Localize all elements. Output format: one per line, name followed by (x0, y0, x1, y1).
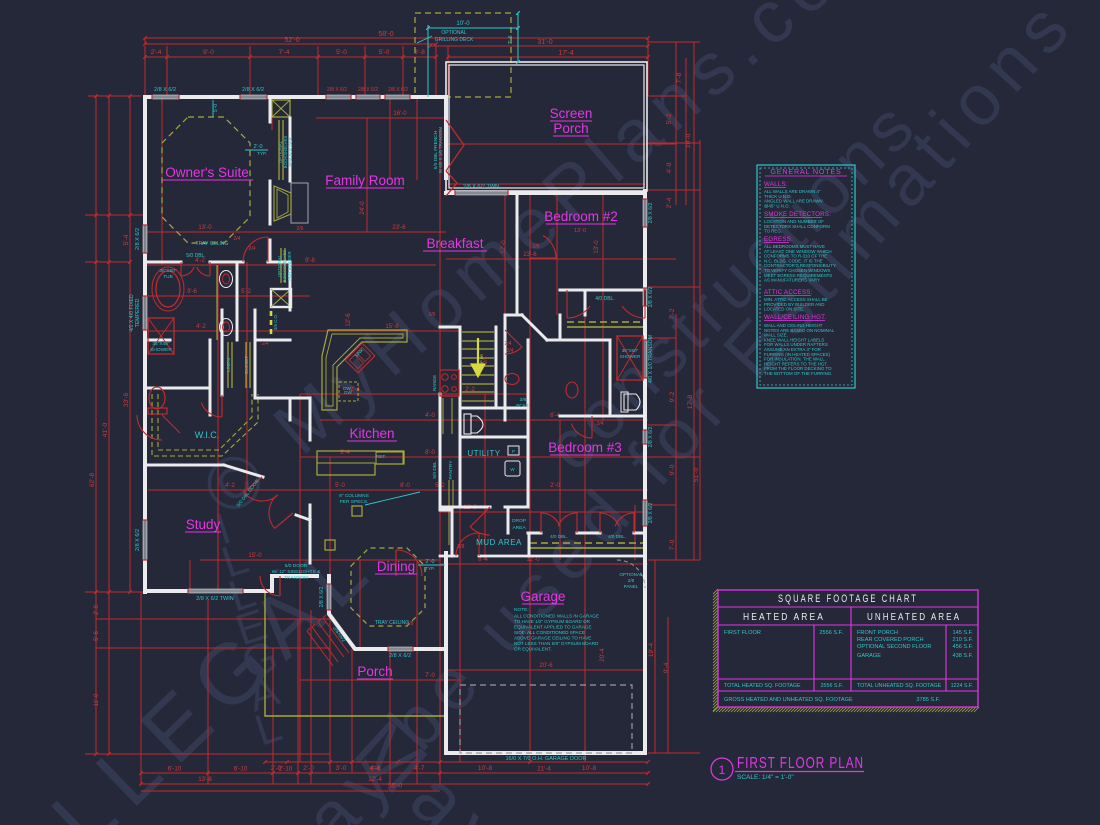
svg-text:REAR COVERED PORCH: REAR COVERED PORCH (857, 637, 924, 643)
svg-text:3/6 C.O.: 3/6 C.O. (273, 314, 278, 330)
svg-text:7'-4: 7'-4 (279, 49, 290, 56)
svg-text:FIRST FLOOR: FIRST FLOOR (724, 630, 761, 636)
svg-text:36"X48": 36"X48" (152, 341, 170, 347)
svg-text:438 S.F.: 438 S.F. (952, 653, 973, 659)
svg-text:SHOWER: SHOWER (150, 347, 172, 353)
svg-text:W.I.C.: W.I.C. (195, 430, 220, 440)
svg-text:2/8 X 6/2: 2/8 X 6/2 (648, 503, 654, 524)
svg-text:@45° U.N.O.: @45° U.N.O. (764, 203, 790, 208)
svg-text:7'-8: 7'-8 (676, 72, 683, 83)
svg-text:20'-4: 20'-4 (600, 648, 606, 662)
svg-text:2/6: 2/6 (429, 312, 436, 318)
svg-text:7'-0: 7'-0 (669, 539, 676, 550)
svg-text:WALLS:: WALLS: (764, 181, 788, 188)
svg-text:4'-2: 4'-2 (196, 324, 206, 330)
svg-text:5'-0: 5'-0 (379, 49, 390, 56)
svg-text:Porch: Porch (553, 121, 588, 136)
svg-text:7'-2: 7'-2 (669, 308, 676, 319)
svg-text:36"X60": 36"X60" (159, 268, 177, 274)
svg-text:5'-0: 5'-0 (335, 483, 345, 489)
svg-text:19'-4: 19'-4 (648, 642, 655, 657)
svg-text:2/8 X 6/2: 2/8 X 6/2 (242, 87, 264, 93)
svg-text:13'-0: 13'-0 (198, 225, 212, 231)
svg-text:13'-8: 13'-8 (198, 776, 212, 783)
svg-text:2/8 X 6/2: 2/8 X 6/2 (648, 203, 654, 224)
svg-text:SMOKE DETECTORS:: SMOKE DETECTORS: (764, 211, 831, 218)
svg-text:62'-8: 62'-8 (89, 472, 96, 487)
svg-text:GARAGE: GARAGE (857, 653, 881, 659)
svg-text:Bedroom #3: Bedroom #3 (548, 440, 622, 455)
svg-text:24'-0: 24'-0 (360, 201, 366, 215)
svg-text:GRILLING DECK: GRILLING DECK (435, 37, 474, 43)
svg-text:9'-0: 9'-0 (203, 49, 214, 56)
svg-text:TRANSOM: TRANSOM (284, 575, 308, 581)
svg-text:20'-6: 20'-6 (539, 663, 553, 669)
svg-text:2/4: 2/4 (505, 341, 512, 347)
svg-text:5'-6: 5'-6 (94, 630, 100, 640)
svg-text:5'-2: 5'-2 (241, 289, 251, 295)
svg-text:12'-0: 12'-0 (526, 557, 540, 563)
svg-text:2556 S.F.: 2556 S.F. (819, 630, 843, 636)
svg-text:NOT LESS THAN 5/8" GYPSUM BOAR: NOT LESS THAN 5/8" GYPSUM BOARD (514, 641, 599, 646)
svg-text:7'-0: 7'-0 (425, 673, 435, 679)
svg-text:2/8 X 6/2: 2/8 X 6/2 (388, 87, 408, 93)
svg-text:33'-6: 33'-6 (123, 392, 130, 407)
svg-text:TRAY CEILING: TRAY CEILING (375, 620, 409, 626)
svg-text:EQUIVALENT APPLIED TO GARAGE: EQUIVALENT APPLIED TO GARAGE (514, 625, 592, 630)
svg-text:AS MANUFATURERS VARY.: AS MANUFATURERS VARY. (764, 278, 821, 283)
svg-text:2'-0: 2'-0 (550, 483, 560, 489)
svg-text:9'-6: 9'-6 (187, 289, 197, 295)
svg-text:2'-4: 2'-4 (151, 49, 162, 56)
svg-text:3'-0: 3'-0 (336, 765, 347, 772)
svg-text:Screen: Screen (550, 106, 593, 121)
svg-text:5'-2: 5'-2 (666, 113, 673, 124)
svg-text:2/4: 2/4 (597, 421, 604, 427)
svg-text:10'-8: 10'-8 (478, 765, 493, 772)
svg-text:4'-2: 4'-2 (225, 483, 235, 489)
svg-text:DROP: DROP (512, 518, 526, 524)
svg-text:10'-0: 10'-0 (456, 21, 470, 27)
svg-text:TEMPERED: TEMPERED (135, 298, 141, 327)
svg-text:2/4: 2/4 (483, 356, 489, 363)
svg-text:12'-4: 12'-4 (368, 776, 382, 783)
svg-text:12'-0: 12'-0 (501, 240, 507, 254)
svg-text:MUD AREA: MUD AREA (476, 538, 522, 547)
svg-text:OR EQUIVALENT.: OR EQUIVALENT. (514, 647, 552, 652)
svg-text:SIDE. ALL CONDITIONED SPACE: SIDE. ALL CONDITIONED SPACE (514, 630, 585, 635)
svg-text:8'-0: 8'-0 (425, 450, 435, 456)
svg-text:2'-0: 2'-0 (254, 144, 263, 150)
svg-text:ATTIC ACCESS:: ATTIC ACCESS: (764, 289, 813, 296)
svg-text:2/8 X 6/2: 2/8 X 6/2 (358, 87, 378, 93)
svg-text:GROSS HEATED AND UNHEATED SQ.: GROSS HEATED AND UNHEATED SQ. FOOTAGE (724, 697, 853, 703)
svg-text:1224 S.F.: 1224 S.F. (951, 683, 973, 689)
svg-text:PCKT.: PCKT. (516, 403, 530, 409)
svg-text:OPTIONAL SECOND FLOOR: OPTIONAL SECOND FLOOR (857, 644, 931, 650)
svg-text:2'-10: 2'-10 (279, 766, 293, 773)
svg-text:NOTE:: NOTE: (514, 607, 529, 613)
svg-text:ABOVE GARAGE CEILING TO HAVE: ABOVE GARAGE CEILING TO HAVE (514, 636, 591, 641)
svg-text:5/0 DBL.: 5/0 DBL. (186, 253, 205, 259)
svg-text:P: P (512, 449, 515, 454)
svg-text:HEATED AREA: HEATED AREA (743, 612, 825, 623)
svg-text:5'-0: 5'-0 (336, 49, 347, 56)
svg-text:PER SPECS.: PER SPECS. (340, 499, 369, 505)
svg-text:OPTIONAL: OPTIONAL (441, 30, 467, 36)
svg-text:10'-0: 10'-0 (685, 133, 692, 148)
svg-text:210 S.F.: 210 S.F. (952, 637, 973, 643)
svg-text:LOCATED ON SITE.: LOCATED ON SITE. (764, 307, 804, 312)
svg-text:TRAY CELING: TRAY CELING (196, 241, 229, 247)
svg-text:Study: Study (186, 517, 221, 532)
svg-text:2556 S.F.: 2556 S.F. (821, 683, 843, 689)
svg-text:4/0 DBL.: 4/0 DBL. (595, 296, 614, 302)
svg-text:58'-0: 58'-0 (378, 31, 393, 38)
svg-text:2/8 X 6/2: 2/8 X 6/2 (648, 287, 654, 308)
svg-text:FRONT PORCH: FRONT PORCH (857, 630, 898, 636)
svg-text:17'-4: 17'-4 (558, 50, 573, 57)
svg-text:21'-4: 21'-4 (537, 766, 551, 773)
svg-text:2/4: 2/4 (262, 341, 269, 347)
svg-text:9'-0: 9'-0 (669, 464, 676, 475)
svg-text:4/0 DBL.: 4/0 DBL. (550, 534, 568, 539)
svg-text:LINEN: LINEN (226, 358, 231, 372)
svg-text:8" COLUMNS: 8" COLUMNS (339, 493, 369, 499)
svg-text:CLOSET: CLOSET (244, 356, 249, 375)
svg-text:2/6: 2/6 (297, 226, 304, 232)
svg-text:6'-10: 6'-10 (234, 766, 248, 773)
svg-text:15'-8: 15'-8 (385, 324, 399, 330)
svg-text:10'-8: 10'-8 (582, 765, 597, 772)
svg-text:2'-0: 2'-0 (303, 765, 314, 772)
svg-text:FIRST FLOOR PLAN: FIRST FLOOR PLAN (737, 755, 864, 772)
svg-text:6'-10: 6'-10 (168, 766, 182, 773)
svg-text:456 S.F.: 456 S.F. (952, 644, 973, 650)
svg-text:2/4: 2/4 (234, 236, 241, 242)
svg-text:9'-2: 9'-2 (669, 391, 676, 402)
svg-text:51'-0: 51'-0 (693, 467, 700, 482)
svg-text:2/8 X 6/2 TWN: 2/8 X 6/2 TWN (463, 184, 499, 190)
svg-text:Bedroom #2: Bedroom #2 (544, 209, 618, 224)
svg-text:2/4: 2/4 (249, 246, 256, 252)
svg-text:4'-0: 4'-0 (425, 413, 435, 419)
svg-text:2/8 X 6/2: 2/8 X 6/2 (319, 587, 325, 608)
svg-text:2/8: 2/8 (628, 578, 635, 583)
svg-text:2/8 X 6/2: 2/8 X 6/2 (135, 529, 141, 551)
svg-text:5'-0: 5'-0 (213, 104, 219, 112)
svg-text:2/8: 2/8 (458, 544, 465, 550)
svg-text:2'-8: 2'-8 (94, 604, 100, 614)
svg-text:Dining: Dining (377, 559, 415, 574)
svg-text:PER BUILDER: PER BUILDER (288, 137, 293, 166)
svg-text:SHOWER: SHOWER (620, 354, 641, 359)
svg-text:3/6: 3/6 (520, 397, 527, 403)
svg-text:Owner's Suite: Owner's Suite (165, 165, 249, 180)
svg-text:2/8: 2/8 (407, 621, 414, 627)
svg-text:2'-0: 2'-0 (426, 559, 435, 565)
svg-text:SQUARE FOOTAGE CHART: SQUARE FOOTAGE CHART (778, 593, 918, 605)
svg-text:5/0 DBL: 5/0 DBL (432, 461, 438, 479)
svg-text:3'-8: 3'-8 (414, 49, 425, 56)
svg-text:2/8 X 6/2: 2/8 X 6/2 (389, 653, 411, 659)
svg-text:W 6/0 X 1/0 TRANSOM: W 6/0 X 1/0 TRANSOM (438, 127, 443, 173)
svg-text:2/8 X 6/2: 2/8 X 6/2 (154, 87, 176, 93)
svg-text:13'-0: 13'-0 (594, 240, 600, 254)
svg-text:Kitchen: Kitchen (349, 426, 394, 441)
svg-text:TOTAL HEATED SQ. FOOTAGE: TOTAL HEATED SQ. FOOTAGE (724, 683, 801, 689)
svg-text:EGRESS:: EGRESS: (764, 236, 793, 243)
svg-text:PER BUILDER: PER BUILDER (287, 251, 292, 280)
svg-text:RANGE: RANGE (432, 375, 437, 391)
svg-text:145 S.F.: 145 S.F. (952, 630, 973, 636)
svg-text:17'-8: 17'-8 (687, 394, 694, 409)
svg-text:Family Room: Family Room (325, 173, 405, 188)
svg-text:GENERAL NOTES: GENERAL NOTES (770, 167, 841, 176)
svg-text:15'-0: 15'-0 (248, 553, 262, 559)
svg-text:2/8 X 6/2 TWIN: 2/8 X 6/2 TWIN (196, 596, 234, 602)
svg-text:UNHEATED AREA: UNHEATED AREA (867, 612, 961, 623)
svg-text:2/8 X 6/2: 2/8 X 6/2 (648, 427, 654, 448)
svg-text:SCALE: 1/4" = 1'-0": SCALE: 1/4" = 1'-0" (737, 774, 794, 781)
svg-text:41'-0: 41'-0 (102, 422, 109, 437)
svg-text:13'-0: 13'-0 (574, 228, 586, 234)
svg-text:OPTIONAL: OPTIONAL (619, 572, 643, 577)
svg-text:DW: DW (343, 386, 351, 391)
svg-text:Breakfast: Breakfast (426, 236, 483, 251)
svg-text:31'-0: 31'-0 (537, 39, 552, 46)
svg-text:TO REG.: TO REG. (764, 229, 782, 234)
svg-text:TYP.: TYP. (425, 566, 435, 571)
svg-text:2/8 X 6/2: 2/8 X 6/2 (135, 228, 141, 250)
svg-text:W/ 12" SIDELIGHTS &: W/ 12" SIDELIGHTS & (272, 569, 321, 575)
svg-text:7'-6: 7'-6 (508, 36, 514, 45)
svg-text:3785 S.F.: 3785 S.F. (916, 697, 940, 703)
svg-text:4'-7: 4'-7 (414, 765, 425, 772)
svg-text:1: 1 (719, 763, 726, 777)
svg-text:Porch: Porch (357, 664, 392, 679)
svg-text:2/8 X 6/2: 2/8 X 6/2 (327, 87, 347, 93)
svg-text:11'-0: 11'-0 (94, 693, 100, 706)
svg-text:5'-8: 5'-8 (370, 766, 381, 773)
svg-text:4'-0: 4'-0 (666, 162, 673, 173)
svg-text:UTILITY: UTILITY (467, 449, 500, 458)
svg-text:23'-6: 23'-6 (392, 225, 406, 231)
svg-text:16/0 X 7/0 O.H. GARAGE DOOR: 16/0 X 7/0 O.H. GARAGE DOOR (506, 756, 587, 762)
svg-text:4/0 X 1/0 TRANSOM: 4/0 X 1/0 TRANSOM (648, 335, 654, 383)
svg-text:TO HAVE 1/2" GYPSUM BOARD OR: TO HAVE 1/2" GYPSUM BOARD OR (514, 619, 591, 624)
svg-text:16'-0: 16'-0 (393, 111, 407, 117)
svg-text:TUB: TUB (163, 274, 173, 280)
svg-text:2/6: 2/6 (533, 244, 540, 250)
svg-text:36"X60": 36"X60" (622, 348, 639, 353)
svg-text:52'-0: 52'-0 (284, 37, 299, 44)
svg-text:5'-4: 5'-4 (123, 234, 130, 245)
svg-text:PANTRY: PANTRY (448, 460, 454, 480)
svg-text:ALL CONDITIONED WALLS IN GARAG: ALL CONDITIONED WALLS IN GARAGE (514, 614, 599, 619)
svg-text:9'-4: 9'-4 (663, 662, 670, 673)
svg-text:WALL/CEILING HGT.: WALL/CEILING HGT. (764, 314, 826, 321)
svg-text:5/0 DOOR: 5/0 DOOR (285, 563, 308, 569)
svg-text:TOTAL UNHEATED SQ. FOOTAGE: TOTAL UNHEATED SQ. FOOTAGE (857, 683, 942, 689)
svg-text:THE BOTTOM OF THE FURRING.: THE BOTTOM OF THE FURRING. (764, 371, 832, 376)
svg-text:TYP.: TYP. (257, 151, 267, 156)
svg-text:REF.: REF. (376, 454, 386, 460)
svg-text:4/0 DBL.: 4/0 DBL. (608, 534, 626, 539)
svg-text:2/4: 2/4 (507, 348, 514, 354)
svg-text:12'-6: 12'-6 (346, 313, 352, 327)
svg-text:PANEL: PANEL (624, 584, 639, 589)
svg-text:2'-4: 2'-4 (666, 197, 673, 208)
svg-text:Garage: Garage (520, 589, 565, 604)
svg-text:8'-4: 8'-4 (478, 557, 488, 563)
svg-text:9'-8: 9'-8 (305, 258, 315, 264)
svg-text:8'-0: 8'-0 (400, 483, 410, 489)
svg-text:AREA: AREA (512, 525, 526, 531)
